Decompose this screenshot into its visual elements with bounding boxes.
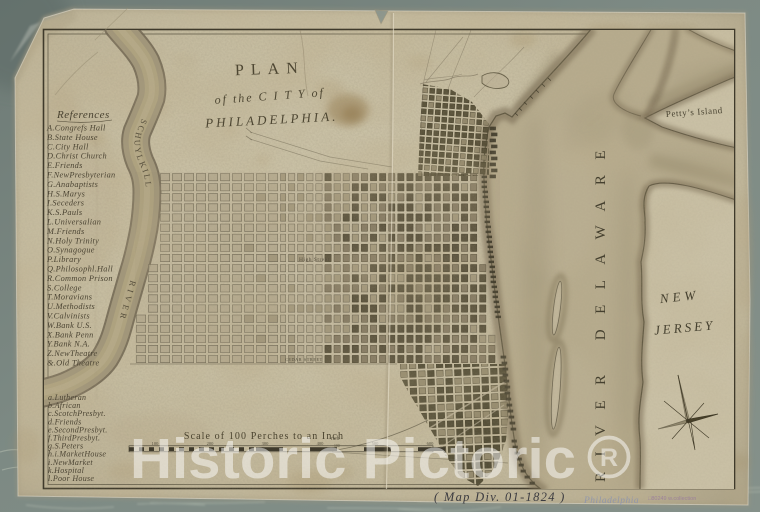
svg-text:K.S.Pauls: K.S.Pauls (46, 208, 82, 217)
svg-text:L.Universalian: L.Universalian (46, 218, 101, 227)
svg-text:F.NewPresbyterian: F.NewPresbyterian (46, 171, 115, 180)
svg-text:Historic Pictoric: Historic Pictoric (130, 427, 576, 491)
svg-text:R: R (600, 444, 618, 472)
svg-text:C.City Hall: C.City Hall (47, 142, 89, 151)
svg-text:PLAN: PLAN (235, 60, 305, 79)
svg-text:M.Friends: M.Friends (46, 227, 85, 236)
svg-text:E.Friends: E.Friends (46, 161, 83, 170)
svg-text:O.Synagogue: O.Synagogue (47, 246, 95, 255)
svg-text:W.Bank U.S.: W.Bank U.S. (47, 321, 92, 330)
svg-text:Z.NewTheatre: Z.NewTheatre (47, 349, 98, 358)
svg-text:H.S.Marys: H.S.Marys (46, 189, 85, 198)
svg-text:References: References (56, 109, 110, 121)
svg-text:Y.Bank N.A.: Y.Bank N.A. (47, 340, 90, 349)
svg-text:X.Bank Penn: X.Bank Penn (46, 330, 94, 339)
svg-text:RIVER DELAWARE: RIVER DELAWARE (593, 135, 609, 482)
svg-text:( Map Div. 01-1824 ): ( Map Div. 01-1824 ) (434, 490, 566, 504)
svg-text:Philadelphia: Philadelphia (583, 496, 639, 506)
svg-text:P.Library: P.Library (46, 255, 81, 264)
svg-text:S.College: S.College (47, 283, 82, 292)
svg-text:l.Poor House: l.Poor House (48, 474, 94, 483)
svg-text:I.Seceders: I.Seceders (46, 199, 84, 208)
svg-text:U.Methodists: U.Methodists (47, 302, 95, 311)
svg-text:Q.Philosophl.Hall: Q.Philosophl.Hall (47, 265, 113, 274)
svg-text:&.Old Theatre: &.Old Theatre (47, 359, 99, 368)
svg-text:G.Anabaptists: G.Anabaptists (47, 180, 98, 189)
svg-text:R.Common Prison: R.Common Prison (46, 274, 113, 283)
svg-text:A.Congrefs Hall: A.Congrefs Hall (46, 124, 106, 133)
svg-text:D.Christ Church: D.Christ Church (46, 152, 107, 161)
svg-text:N.Holy Trinity: N.Holy Trinity (46, 236, 99, 245)
svg-text:V.Calvinists: V.Calvinists (47, 312, 90, 321)
svg-text:B.State House: B.State House (47, 133, 98, 142)
svg-text:T.Moravians: T.Moravians (47, 293, 92, 302)
svg-text:□80249 w.collection: □80249 w.collection (648, 496, 696, 502)
